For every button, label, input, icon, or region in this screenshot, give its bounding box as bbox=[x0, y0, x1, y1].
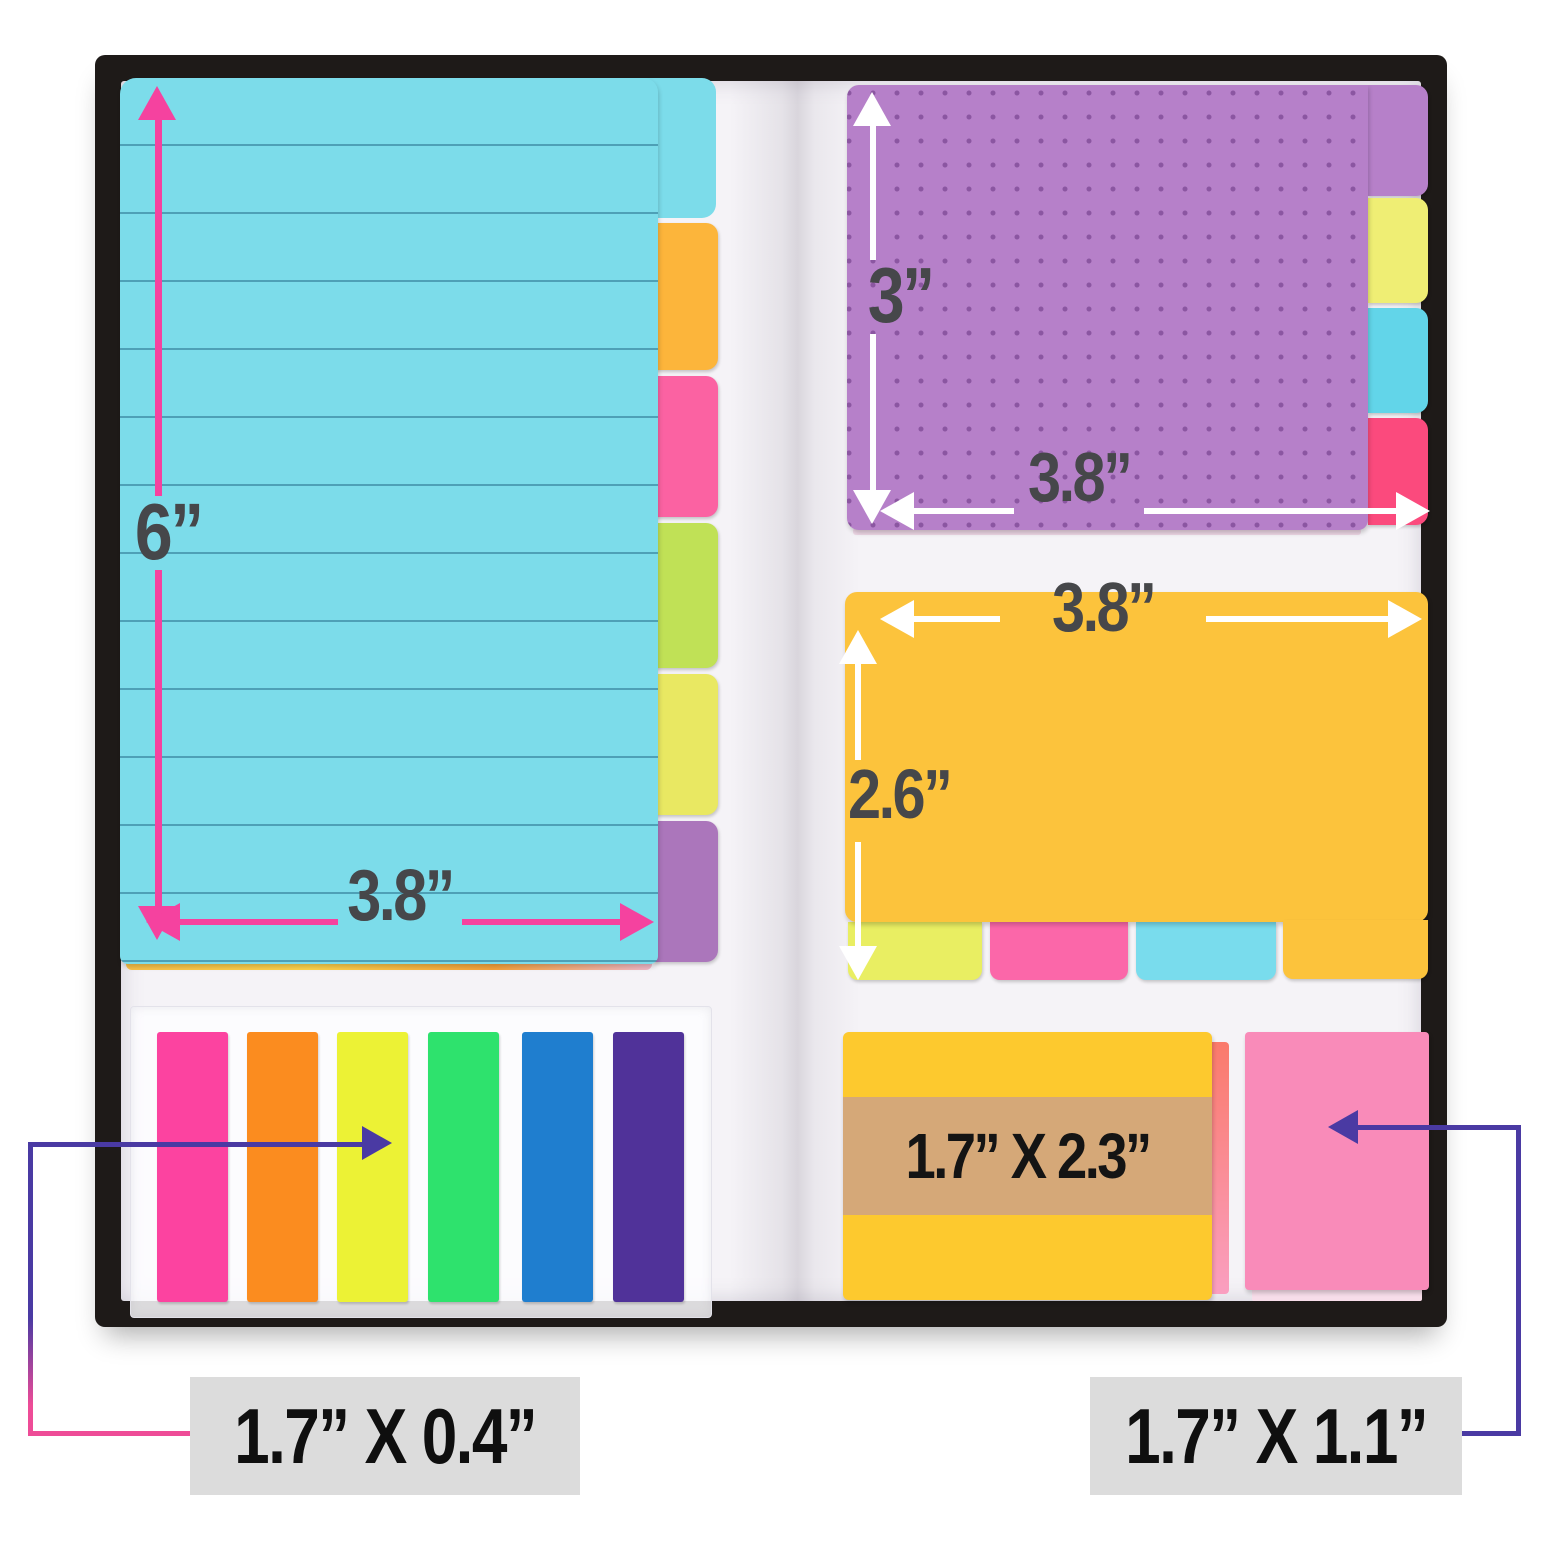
arrow-left-icon bbox=[146, 903, 180, 941]
height-arrow-6in-lower bbox=[155, 570, 162, 910]
arrow-right-icon bbox=[362, 1126, 392, 1160]
flag-pink bbox=[157, 1032, 228, 1302]
arrow-right-icon bbox=[1396, 492, 1430, 530]
callout-line-pink-v bbox=[1516, 1125, 1521, 1435]
arrow-down-icon bbox=[839, 946, 877, 980]
arrow-left-icon bbox=[1328, 1110, 1358, 1144]
arrow-right-icon bbox=[620, 903, 654, 941]
arrow-left-icon bbox=[880, 492, 914, 530]
callout-line-flags-b bbox=[28, 1431, 192, 1436]
dim-label-2.6in: 2.6” bbox=[846, 760, 952, 828]
width-arrow-3.8in-orange-r bbox=[1206, 616, 1390, 622]
dim-label-3.8in-purple: 3.8” bbox=[1014, 446, 1144, 508]
dim-label-3.8in-orange: 3.8” bbox=[1040, 576, 1166, 638]
height-arrow-3in-lower bbox=[870, 334, 876, 492]
orange-note-tab-blue bbox=[1136, 922, 1276, 980]
small-pink-note bbox=[1245, 1032, 1429, 1290]
pad-tab-pink bbox=[654, 376, 718, 517]
pad-tab-yellow bbox=[654, 674, 718, 815]
pad-tab-green bbox=[654, 523, 718, 668]
pad-tab-purple bbox=[654, 821, 718, 962]
spine-shadow bbox=[730, 81, 860, 1301]
dotted-note-tab-blue bbox=[1368, 308, 1428, 413]
dotted-note-tab-yellow bbox=[1368, 198, 1428, 303]
orange-note-tab-pink bbox=[990, 922, 1128, 980]
arrow-up-icon bbox=[839, 630, 877, 664]
callout-line-pink-h bbox=[1356, 1125, 1520, 1130]
callout-label-pink-note: 1.7” X 1.1” bbox=[1090, 1377, 1462, 1495]
width-arrow-3.8in-left bbox=[176, 919, 338, 925]
height-arrow-2.6in bbox=[855, 660, 861, 760]
dim-label-3.8in-pad: 3.8” bbox=[338, 864, 462, 928]
dotted-note-tab-purple bbox=[1368, 85, 1428, 196]
width-arrow-3.8in-right bbox=[462, 919, 620, 925]
width-arrow-3.8in-purple-r bbox=[1144, 508, 1398, 514]
flag-purple bbox=[613, 1032, 684, 1302]
size-label-yellow-note: 1.7” X 2.3” bbox=[843, 1097, 1212, 1215]
yellow-note-sheet-edge bbox=[1212, 1042, 1229, 1294]
width-arrow-3.8in-orange-l bbox=[912, 616, 1000, 622]
callout-line-pink-b bbox=[1462, 1431, 1521, 1436]
product-infographic: 6” 3.8” 3” 3.8” 3.8” bbox=[0, 0, 1550, 1550]
flag-yellow bbox=[337, 1032, 408, 1302]
arrow-right-icon bbox=[1388, 600, 1422, 638]
small-yellow-note: 1.7” X 2.3” bbox=[843, 1032, 1212, 1300]
height-arrow-3in bbox=[870, 120, 876, 260]
arrow-up-icon bbox=[138, 86, 176, 120]
callout-line-flags-v bbox=[28, 1142, 33, 1435]
flag-blue bbox=[522, 1032, 593, 1302]
orange-note-tab-orange bbox=[1283, 920, 1428, 979]
callout-line-flags-h bbox=[28, 1142, 364, 1147]
flag-orange bbox=[247, 1032, 318, 1302]
flag-green bbox=[428, 1032, 499, 1302]
width-arrow-3.8in-purple-l bbox=[912, 508, 1014, 514]
dim-label-3in: 3” bbox=[860, 262, 940, 328]
height-arrow-2.6in-lower bbox=[855, 842, 861, 948]
pad-tab-orange bbox=[654, 223, 718, 370]
dim-label-6in: 6” bbox=[124, 498, 212, 566]
callout-label-flags: 1.7” X 0.4” bbox=[190, 1377, 580, 1495]
height-arrow-6in bbox=[155, 116, 162, 496]
arrow-left-icon bbox=[880, 600, 914, 638]
